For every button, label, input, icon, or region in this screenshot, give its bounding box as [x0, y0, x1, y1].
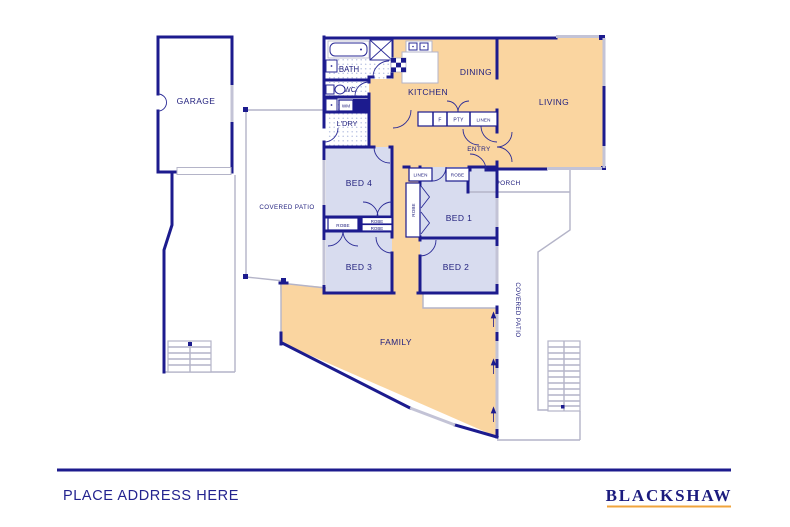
- covered-patio-left-outline: [246, 110, 324, 281]
- brand-logo: BLACKSHAW: [606, 486, 733, 507]
- stairs-left: [168, 341, 211, 372]
- pantry-label: PTY: [453, 118, 464, 124]
- linen-label: LINEN: [413, 173, 427, 178]
- linen-label: LINEN: [476, 118, 490, 123]
- bed1-label: BED 1: [446, 213, 473, 223]
- kitchen-label: KITCHEN: [408, 87, 448, 97]
- fridge-label: F: [438, 118, 441, 124]
- living-label: LIVING: [539, 97, 569, 107]
- porch-label: PORCH: [496, 180, 521, 187]
- entry-label: ENTRY: [467, 146, 491, 153]
- covered-patio-right-label: COVERED PATIO: [514, 282, 521, 337]
- kitchen-sink: [406, 41, 432, 52]
- bath-label: BATH: [339, 65, 359, 74]
- garage-door: [177, 168, 231, 175]
- garage-label: GARAGE: [177, 96, 216, 106]
- wc-label: WC: [344, 87, 356, 94]
- robe-label: ROBE: [451, 173, 464, 178]
- ldry-label: L'DRY: [337, 119, 358, 128]
- robe-label: ROBE: [336, 223, 349, 228]
- robe-label: ROBE: [371, 226, 384, 231]
- robe-label-vertical: ROBE: [411, 203, 416, 216]
- garage-door-arc: [158, 94, 167, 111]
- family-label: FAMILY: [380, 337, 412, 347]
- robe-label: ROBE: [371, 219, 384, 224]
- stairs-right: [548, 341, 580, 411]
- floorplan-page: GARAGE BATH WC WM L'DRY KITCHEN DINING L…: [0, 0, 790, 527]
- bed2-label: BED 2: [443, 262, 470, 272]
- bed4-label: BED 4: [346, 178, 373, 188]
- bed3-label: BED 3: [346, 262, 373, 272]
- covered-patio-left-label: COVERED PATIO: [259, 204, 314, 211]
- cooktop: [391, 58, 406, 72]
- wm-label: WM: [342, 104, 350, 109]
- washing-machine: [353, 99, 368, 112]
- dining-label: DINING: [460, 67, 492, 77]
- address-placeholder: PLACE ADDRESS HERE: [63, 488, 239, 504]
- brand-name: BLACKSHAW: [606, 486, 733, 505]
- floorplan-drawing: GARAGE BATH WC WM L'DRY KITCHEN DINING L…: [0, 0, 790, 527]
- footer: PLACE ADDRESS HERE BLACKSHAW: [57, 470, 732, 507]
- recess-outline: [423, 293, 497, 308]
- shower: [370, 40, 392, 60]
- kitchen-bench: [402, 52, 438, 83]
